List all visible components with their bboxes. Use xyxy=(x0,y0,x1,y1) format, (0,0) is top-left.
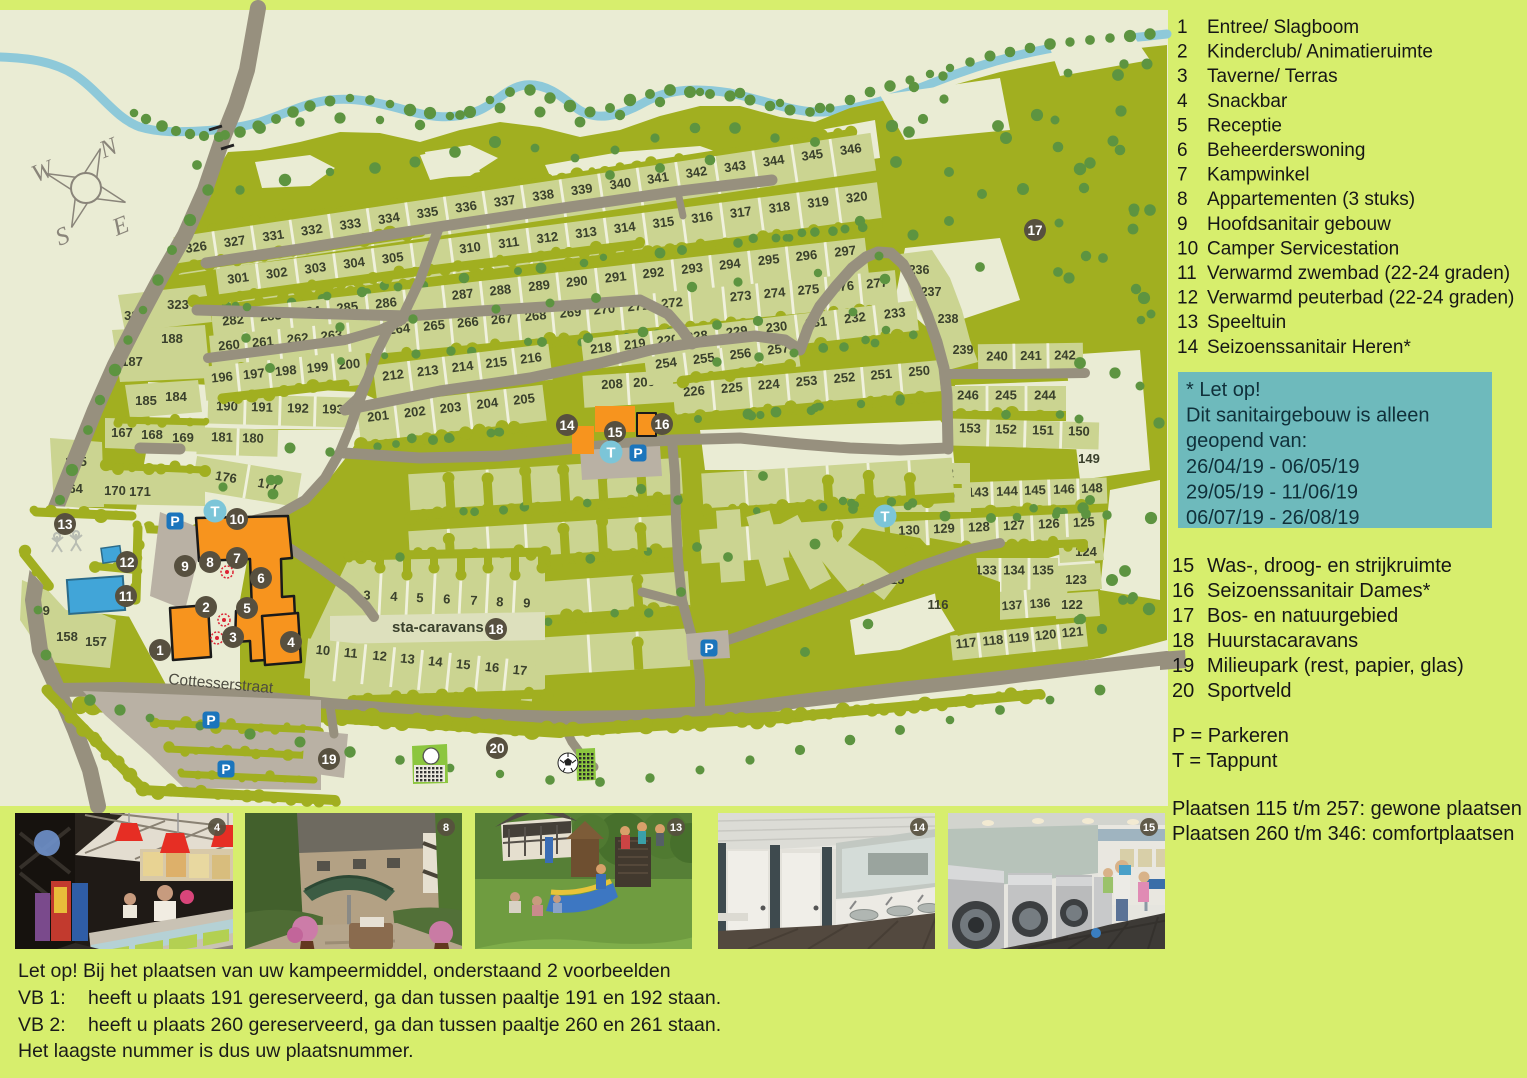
svg-text:Speeltuin: Speeltuin xyxy=(1207,312,1286,333)
svg-text:heeft u plaats 260 gereserveer: heeft u plaats 260 gereserveerd, ga dan … xyxy=(88,1014,721,1036)
svg-text:15: 15 xyxy=(1172,555,1194,577)
svg-text:Verwarmd peuterbad (22-24 grad: Verwarmd peuterbad (22-24 graden) xyxy=(1207,288,1514,309)
svg-text:128: 128 xyxy=(968,519,990,535)
svg-text:150: 150 xyxy=(1068,423,1090,439)
svg-text:335: 335 xyxy=(416,203,440,221)
svg-text:303: 303 xyxy=(304,259,327,277)
svg-text:225: 225 xyxy=(720,379,743,396)
svg-text:135: 135 xyxy=(1032,563,1054,578)
svg-text:Snackbar: Snackbar xyxy=(1207,91,1288,112)
svg-text:144: 144 xyxy=(996,483,1019,499)
svg-text:Plaatsen 115 t/m 257: gewone p: Plaatsen 115 t/m 257: gewone plaatsen xyxy=(1172,798,1522,820)
svg-text:181: 181 xyxy=(211,429,233,445)
svg-text:8: 8 xyxy=(443,822,449,834)
svg-text:151: 151 xyxy=(1032,422,1054,438)
svg-text:255: 255 xyxy=(692,349,715,367)
svg-text:169: 169 xyxy=(172,430,194,445)
svg-text:320: 320 xyxy=(845,188,868,206)
svg-text:136: 136 xyxy=(1029,596,1051,611)
svg-text:P = Parkeren: P = Parkeren xyxy=(1172,725,1289,747)
svg-text:286: 286 xyxy=(374,294,397,311)
svg-text:289: 289 xyxy=(527,277,550,294)
svg-text:geopend van:: geopend van: xyxy=(1186,430,1307,452)
svg-text:17: 17 xyxy=(512,662,528,678)
svg-text:168: 168 xyxy=(141,427,163,442)
svg-text:Het laagste nummer is dus uw p: Het laagste nummer is dus uw plaatsnumme… xyxy=(18,1040,414,1062)
svg-text:4: 4 xyxy=(1177,91,1188,112)
svg-text:Seizoenssanitair Dames*: Seizoenssanitair Dames* xyxy=(1207,580,1431,602)
svg-text:sta-caravans: sta-caravans xyxy=(392,619,484,636)
svg-text:20: 20 xyxy=(1172,680,1194,702)
svg-text:Kampwinkel: Kampwinkel xyxy=(1207,165,1309,186)
svg-text:Verwarmd zwembad (22-24 graden: Verwarmd zwembad (22-24 graden) xyxy=(1207,263,1510,284)
svg-text:10: 10 xyxy=(1177,238,1198,259)
svg-text:6: 6 xyxy=(1177,140,1188,161)
svg-text:13: 13 xyxy=(1177,312,1198,333)
svg-text:290: 290 xyxy=(565,273,588,290)
svg-text:Camper Servicestation: Camper Servicestation xyxy=(1207,238,1399,259)
svg-text:275: 275 xyxy=(797,281,820,298)
svg-text:302: 302 xyxy=(265,264,288,282)
svg-text:188: 188 xyxy=(161,331,183,346)
svg-text:8: 8 xyxy=(1177,189,1188,210)
svg-text:212: 212 xyxy=(381,366,404,384)
svg-text:06/07/19 - 26/08/19: 06/07/19 - 26/08/19 xyxy=(1186,507,1359,529)
svg-text:13: 13 xyxy=(57,517,73,532)
svg-text:129: 129 xyxy=(933,520,955,536)
svg-text:9: 9 xyxy=(523,595,531,610)
svg-text:338: 338 xyxy=(531,186,555,204)
svg-text:Was-, droog- en strijkruimte: Was-, droog- en strijkruimte xyxy=(1207,555,1452,577)
svg-text:157: 157 xyxy=(85,634,107,649)
svg-text:313: 313 xyxy=(574,224,597,242)
svg-text:213: 213 xyxy=(416,362,439,380)
svg-text:Receptie: Receptie xyxy=(1207,115,1282,136)
svg-text:4: 4 xyxy=(287,635,295,650)
svg-text:199: 199 xyxy=(306,359,329,376)
svg-text:3: 3 xyxy=(1177,66,1188,87)
svg-text:11: 11 xyxy=(119,589,134,604)
svg-text:15: 15 xyxy=(607,425,623,440)
svg-text:9: 9 xyxy=(1177,214,1188,235)
svg-text:251: 251 xyxy=(870,366,893,383)
svg-text:256: 256 xyxy=(729,345,752,363)
svg-text:203: 203 xyxy=(439,399,462,416)
svg-text:10: 10 xyxy=(229,512,244,527)
svg-text:301: 301 xyxy=(226,269,249,287)
svg-text:246: 246 xyxy=(957,388,979,403)
svg-text:304: 304 xyxy=(342,254,366,272)
svg-text:244: 244 xyxy=(1034,388,1056,403)
svg-text:167: 167 xyxy=(111,425,133,440)
svg-text:17: 17 xyxy=(1172,605,1194,627)
svg-text:148: 148 xyxy=(1081,480,1103,496)
svg-text:294: 294 xyxy=(718,255,742,272)
svg-text:Entree/ Slagboom: Entree/ Slagboom xyxy=(1207,17,1359,38)
svg-text:291: 291 xyxy=(604,268,627,285)
svg-text:1: 1 xyxy=(156,643,164,658)
svg-text:11: 11 xyxy=(1177,263,1197,284)
svg-text:331: 331 xyxy=(261,226,285,244)
svg-text:310: 310 xyxy=(458,239,481,257)
svg-text:20: 20 xyxy=(489,741,504,756)
svg-text:15: 15 xyxy=(455,656,471,672)
svg-text:274: 274 xyxy=(763,284,787,301)
svg-text:224: 224 xyxy=(757,376,781,393)
svg-text:18: 18 xyxy=(488,622,504,637)
svg-text:184: 184 xyxy=(165,389,187,404)
svg-text:204: 204 xyxy=(476,394,500,411)
svg-text:192: 192 xyxy=(287,400,309,416)
svg-text:16: 16 xyxy=(484,659,500,675)
svg-text:4: 4 xyxy=(214,822,221,834)
svg-text:VB 2:: VB 2: xyxy=(18,1014,66,1036)
svg-text:19: 19 xyxy=(1172,655,1194,677)
svg-text:245: 245 xyxy=(995,388,1017,403)
svg-text:342: 342 xyxy=(685,163,709,181)
svg-text:253: 253 xyxy=(795,373,818,390)
svg-text:215: 215 xyxy=(485,354,508,372)
svg-text:295: 295 xyxy=(757,251,780,268)
svg-text:17: 17 xyxy=(1027,223,1042,238)
svg-text:116: 116 xyxy=(928,597,949,612)
svg-text:Huurstacaravans: Huurstacaravans xyxy=(1207,630,1358,652)
svg-text:296: 296 xyxy=(795,247,818,264)
svg-text:315: 315 xyxy=(652,213,675,231)
svg-text:198: 198 xyxy=(274,362,297,379)
svg-text:16: 16 xyxy=(654,417,670,432)
svg-text:7: 7 xyxy=(1177,165,1188,186)
svg-text:158: 158 xyxy=(56,629,78,644)
svg-text:13: 13 xyxy=(400,650,416,666)
svg-text:339: 339 xyxy=(570,180,594,198)
svg-text:T = Tappunt: T = Tappunt xyxy=(1172,750,1278,772)
svg-text:292: 292 xyxy=(642,264,665,281)
svg-text:180: 180 xyxy=(242,430,264,446)
svg-text:5: 5 xyxy=(1177,115,1188,136)
svg-text:153: 153 xyxy=(959,420,981,436)
svg-text:119: 119 xyxy=(1008,629,1030,646)
svg-text:208: 208 xyxy=(601,376,624,392)
svg-text:10: 10 xyxy=(315,642,331,658)
svg-text:171: 171 xyxy=(129,484,151,499)
svg-text:7: 7 xyxy=(470,593,478,608)
svg-text:122: 122 xyxy=(1061,597,1083,612)
svg-text:316: 316 xyxy=(690,208,713,226)
svg-text:14: 14 xyxy=(427,653,444,669)
svg-text:137: 137 xyxy=(1001,598,1023,613)
svg-text:216: 216 xyxy=(519,349,542,367)
svg-text:323: 323 xyxy=(167,297,189,312)
svg-text:197: 197 xyxy=(242,365,265,382)
svg-text:14: 14 xyxy=(1177,337,1199,358)
svg-text:254: 254 xyxy=(654,354,678,372)
svg-text:Plaatsen 260 t/m 346: comfortp: Plaatsen 260 t/m 346: comfortplaatsen xyxy=(1172,823,1514,845)
svg-text:Kinderclub/ Animatieruimte: Kinderclub/ Animatieruimte xyxy=(1207,42,1433,63)
svg-text:29/05/19 - 11/06/19: 29/05/19 - 11/06/19 xyxy=(1186,481,1358,503)
svg-text:VB 1:: VB 1: xyxy=(18,987,66,1009)
svg-text:120: 120 xyxy=(1034,626,1057,643)
svg-text:121: 121 xyxy=(1061,623,1084,640)
svg-text:12: 12 xyxy=(1177,288,1198,309)
svg-text:185: 185 xyxy=(135,393,157,408)
svg-text:Milieupark (rest, papier, glas: Milieupark (rest, papier, glas) xyxy=(1207,655,1464,677)
svg-text:7: 7 xyxy=(233,551,241,566)
svg-text:242: 242 xyxy=(1054,347,1076,362)
svg-text:336: 336 xyxy=(454,198,478,216)
svg-text:11: 11 xyxy=(343,645,358,661)
svg-text:Appartementen (3 stuks): Appartementen (3 stuks) xyxy=(1207,189,1415,210)
svg-text:14: 14 xyxy=(559,418,575,433)
svg-text:241: 241 xyxy=(1020,348,1042,363)
svg-text:P: P xyxy=(704,640,713,656)
svg-text:2: 2 xyxy=(202,600,210,615)
svg-text:P: P xyxy=(206,712,215,728)
svg-text:9: 9 xyxy=(181,559,189,574)
svg-text:117: 117 xyxy=(955,634,977,651)
svg-text:327: 327 xyxy=(223,232,247,250)
svg-text:6: 6 xyxy=(257,571,265,586)
svg-text:Taverne/ Terras: Taverne/ Terras xyxy=(1207,66,1338,87)
svg-text:P: P xyxy=(221,761,230,777)
svg-text:8: 8 xyxy=(496,594,504,609)
svg-text:19: 19 xyxy=(321,752,336,767)
svg-text:287: 287 xyxy=(451,285,474,302)
svg-text:218: 218 xyxy=(589,339,612,356)
svg-text:233: 233 xyxy=(883,304,906,321)
svg-text:202: 202 xyxy=(403,403,426,420)
svg-text:3: 3 xyxy=(229,630,237,645)
svg-text:311: 311 xyxy=(497,234,520,252)
svg-text:146: 146 xyxy=(1053,481,1075,497)
svg-text:205: 205 xyxy=(512,390,535,407)
svg-text:319: 319 xyxy=(806,193,829,211)
svg-text:337: 337 xyxy=(493,192,517,210)
svg-text:Sportveld: Sportveld xyxy=(1207,680,1292,702)
svg-text:* Let op!: * Let op! xyxy=(1186,379,1261,401)
svg-text:8: 8 xyxy=(206,555,214,570)
svg-text:2: 2 xyxy=(1177,42,1188,63)
svg-text:345: 345 xyxy=(800,146,824,164)
svg-text:305: 305 xyxy=(381,249,404,267)
svg-text:T: T xyxy=(606,445,615,462)
svg-text:12: 12 xyxy=(372,648,388,664)
svg-text:13: 13 xyxy=(670,822,682,834)
svg-text:heeft u plaats 191 gereserveer: heeft u plaats 191 gereserveerd, ga dan … xyxy=(88,987,721,1009)
svg-text:P: P xyxy=(170,513,179,529)
svg-text:15: 15 xyxy=(1143,822,1155,834)
svg-text:250: 250 xyxy=(908,363,931,380)
svg-text:118: 118 xyxy=(982,632,1004,649)
svg-text:293: 293 xyxy=(680,260,703,277)
svg-text:16: 16 xyxy=(1172,580,1194,602)
svg-text:333: 333 xyxy=(338,215,362,233)
svg-text:318: 318 xyxy=(768,198,791,216)
svg-text:152: 152 xyxy=(995,421,1017,437)
svg-text:346: 346 xyxy=(839,140,863,158)
svg-text:145: 145 xyxy=(1024,482,1046,498)
svg-text:123: 123 xyxy=(1065,572,1087,587)
svg-text:18: 18 xyxy=(1172,630,1194,652)
svg-text:T: T xyxy=(210,504,219,521)
svg-text:Hoofdsanitair gebouw: Hoofdsanitair gebouw xyxy=(1207,214,1391,235)
svg-text:297: 297 xyxy=(834,242,857,259)
svg-text:317: 317 xyxy=(729,203,752,221)
svg-text:Bos- en natuurgebied: Bos- en natuurgebied xyxy=(1207,605,1398,627)
svg-text:332: 332 xyxy=(300,221,324,239)
svg-text:314: 314 xyxy=(613,218,637,236)
svg-text:252: 252 xyxy=(833,369,856,386)
svg-text:170: 170 xyxy=(104,483,126,498)
svg-text:238: 238 xyxy=(938,312,959,326)
svg-text:239: 239 xyxy=(953,343,974,357)
svg-text:1: 1 xyxy=(1177,17,1188,38)
svg-text:273: 273 xyxy=(729,288,752,305)
svg-text:P: P xyxy=(633,445,642,461)
svg-text:196: 196 xyxy=(210,368,233,385)
svg-text:288: 288 xyxy=(489,281,512,298)
svg-text:Let op! Bij het plaatsen van u: Let op! Bij het plaatsen van uw kampeerm… xyxy=(18,960,671,982)
svg-text:134: 134 xyxy=(1003,563,1025,578)
svg-text:5: 5 xyxy=(416,590,424,605)
svg-text:312: 312 xyxy=(536,229,559,247)
svg-text:214: 214 xyxy=(451,358,475,376)
svg-text:Dit sanitairgebouw is alleen: Dit sanitairgebouw is alleen xyxy=(1186,405,1429,427)
svg-text:26/04/19 - 06/05/19: 26/04/19 - 06/05/19 xyxy=(1186,456,1359,478)
svg-text:5: 5 xyxy=(243,601,251,616)
svg-text:12: 12 xyxy=(119,555,134,570)
svg-text:Beheerderswoning: Beheerderswoning xyxy=(1207,140,1365,161)
svg-text:240: 240 xyxy=(986,348,1008,363)
svg-text:Seizoenssanitair Heren*: Seizoenssanitair Heren* xyxy=(1207,337,1411,358)
svg-text:14: 14 xyxy=(913,822,926,834)
svg-text:343: 343 xyxy=(723,157,747,175)
svg-text:T: T xyxy=(880,509,889,526)
svg-text:149: 149 xyxy=(1078,451,1100,466)
svg-text:6: 6 xyxy=(443,591,451,606)
